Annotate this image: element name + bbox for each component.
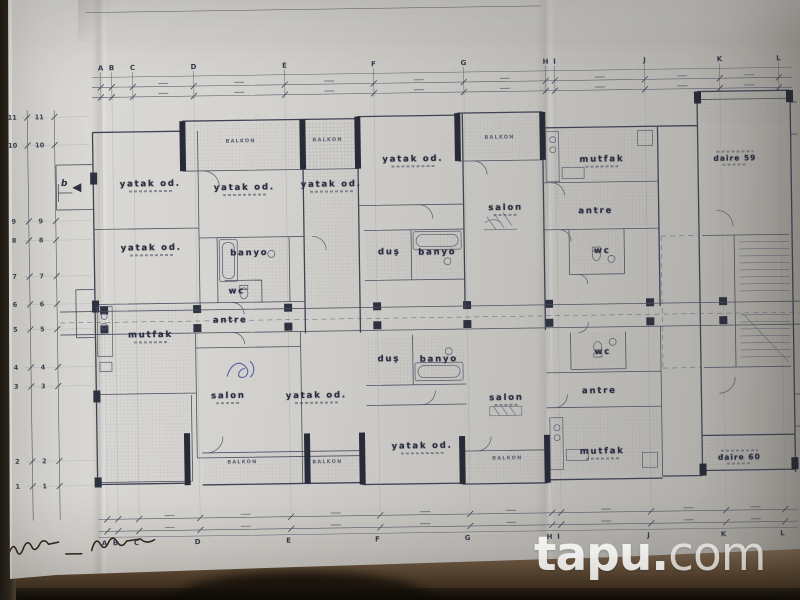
balcony-label: BALKON xyxy=(484,134,514,140)
tapu-watermark: tapu.com xyxy=(534,531,766,578)
row-number: 2 xyxy=(15,458,20,466)
paper-sheet: BALKONBALKONBALKONyatak od.yatak od.yata… xyxy=(0,0,800,600)
row-number: 11 xyxy=(35,113,44,121)
room-label: antre xyxy=(213,315,248,326)
grid-letter-bottom: F xyxy=(375,535,380,543)
room-label: banyo xyxy=(420,354,458,365)
row-number: 7 xyxy=(12,273,17,281)
grid-letter-top: I xyxy=(553,58,556,66)
plan-layer: BALKONBALKONBALKONyatak od.yatak od.yata… xyxy=(0,0,800,600)
row-number: 6 xyxy=(13,301,18,309)
room-label: yatak od. xyxy=(286,390,347,404)
balcony-label: BALKON xyxy=(312,137,342,143)
room-label: wc xyxy=(594,246,611,256)
room-label: yatak od. xyxy=(214,182,275,196)
grid-letter-bottom: L xyxy=(780,529,785,537)
row-number: 9 xyxy=(11,218,16,226)
room-label: wc xyxy=(229,286,246,296)
signature xyxy=(8,538,155,558)
row-number: 8 xyxy=(12,237,17,245)
balcony-label: BALKON xyxy=(492,455,522,461)
room-label: yatak od. xyxy=(121,243,182,257)
row-number: 6 xyxy=(40,300,45,308)
row-number: 5 xyxy=(13,326,18,334)
balcony-label: BALKON xyxy=(312,459,342,465)
grid-letter-top: K xyxy=(717,55,723,63)
unit-label: daire 60 xyxy=(718,449,761,465)
room-label: wc xyxy=(594,347,611,357)
room-label: salon xyxy=(489,393,524,407)
room-label: duş xyxy=(377,354,400,364)
grid-letter-top: C xyxy=(130,64,135,72)
room-label: antre xyxy=(582,386,617,397)
room-label: mutfak xyxy=(580,446,625,460)
floorplan-photo: BALKONBALKONBALKONyatak od.yatak od.yata… xyxy=(0,0,800,600)
photo-bottom-shadow xyxy=(0,588,800,600)
row-number: 11 xyxy=(8,114,17,122)
tapu-logo-com: com xyxy=(668,527,765,582)
room-label: salon xyxy=(488,203,523,217)
grid-letter-bottom: D xyxy=(195,538,201,546)
row-number: 7 xyxy=(39,272,44,280)
grid-letter-top: D xyxy=(191,63,197,71)
row-number: 9 xyxy=(38,217,43,225)
room-label: banyo xyxy=(418,247,456,258)
room-label: yatak od. xyxy=(382,154,443,168)
row-number: 2 xyxy=(42,457,47,465)
row-number: 10 xyxy=(35,141,44,149)
grid-letter-bottom: A xyxy=(102,539,108,547)
room-label: yatak od. xyxy=(301,179,362,193)
grid-letter-top: H xyxy=(542,58,548,66)
balcony-label: BALKON xyxy=(227,459,257,465)
row-number: 4 xyxy=(41,363,46,371)
row-number: 8 xyxy=(39,236,44,244)
section-marker: b xyxy=(61,179,68,189)
grid-letter-bottom: E xyxy=(286,537,291,545)
unit-label: daire 59 xyxy=(713,150,756,166)
room-label: mutfak xyxy=(128,330,173,344)
row-number: 1 xyxy=(42,482,47,490)
room-label: yatak od. xyxy=(120,179,181,193)
row-number: 1 xyxy=(15,483,20,491)
row-number: 10 xyxy=(8,142,17,150)
pen-annotation xyxy=(227,361,254,378)
room-label: banyo xyxy=(230,248,268,259)
room-label: duş xyxy=(378,247,401,257)
room-label: yatak od. xyxy=(392,441,453,455)
sofa-sketch xyxy=(484,212,522,415)
grid-letter-top: J xyxy=(643,56,646,64)
room-label: mutfak xyxy=(579,154,624,168)
room-label: salon xyxy=(211,391,246,405)
grid-letter-top: G xyxy=(461,59,467,67)
row-number: 5 xyxy=(40,325,45,333)
row-number: 3 xyxy=(41,382,46,390)
grid-letter-top: E xyxy=(282,62,287,70)
floorplan-drawing xyxy=(0,0,800,600)
tapu-logo-bold: tapu. xyxy=(534,527,668,582)
row-number: 4 xyxy=(14,364,19,372)
grid-letter-bottom: C xyxy=(134,539,139,547)
grid-letter-bottom: B xyxy=(113,539,118,547)
grid-letter-bottom: G xyxy=(465,534,471,542)
balcony-label: BALKON xyxy=(226,138,256,144)
row-number: 3 xyxy=(14,383,19,391)
room-label: antre xyxy=(578,206,613,217)
grid-letter-top: B xyxy=(109,64,114,72)
grid-letter-top: L xyxy=(776,54,781,62)
grid-letter-top: F xyxy=(371,60,376,68)
grid-letter-top: A xyxy=(98,64,104,72)
